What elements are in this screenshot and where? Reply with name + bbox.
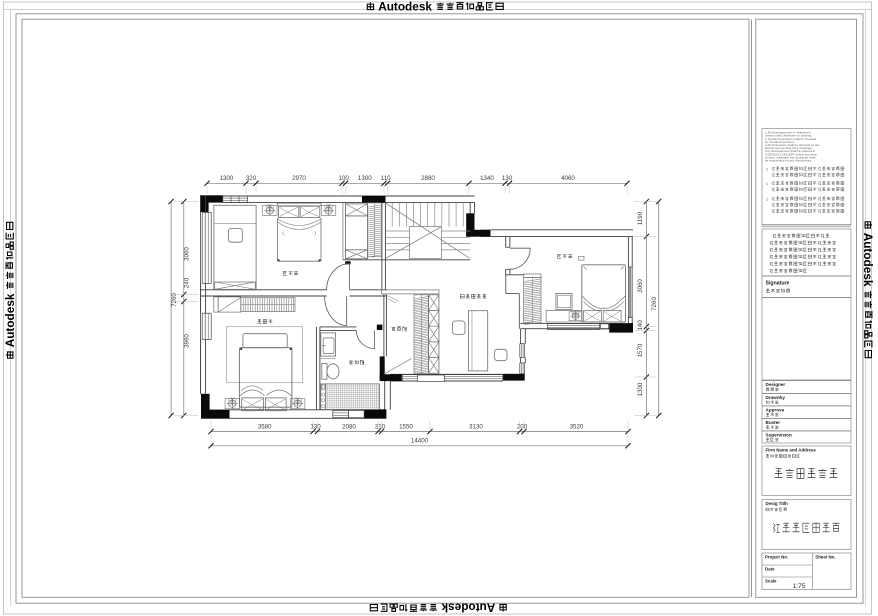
svg-text:1550: 1550 xyxy=(399,423,413,430)
svg-text:1:75: 1:75 xyxy=(793,583,806,590)
svg-text:Designer: Designer xyxy=(766,382,786,387)
svg-text:310: 310 xyxy=(375,423,386,430)
svg-text:1340: 1340 xyxy=(480,175,494,182)
svg-text:1570: 1570 xyxy=(637,343,644,357)
svg-text:Date: Date xyxy=(765,567,775,572)
svg-text:130: 130 xyxy=(502,175,513,182)
svg-text:1300: 1300 xyxy=(358,175,372,182)
svg-text:3520: 3520 xyxy=(570,423,584,430)
svg-text:Drawnby: Drawnby xyxy=(766,395,786,400)
svg-text:Approve: Approve xyxy=(766,407,785,412)
svg-text:2080: 2080 xyxy=(342,423,356,430)
svg-text:240: 240 xyxy=(184,277,191,288)
svg-text:1300: 1300 xyxy=(220,175,234,182)
svg-text:3960: 3960 xyxy=(184,334,191,348)
svg-text:200: 200 xyxy=(517,423,528,430)
svg-text:1300: 1300 xyxy=(637,382,644,396)
svg-text:1: 1 xyxy=(766,168,768,172)
svg-text:7260: 7260 xyxy=(651,297,658,311)
svg-text:2970: 2970 xyxy=(292,175,306,182)
svg-text:320: 320 xyxy=(246,175,257,182)
svg-text:Sheet No.: Sheet No. xyxy=(815,555,835,560)
svg-text:14400: 14400 xyxy=(411,438,429,445)
svg-text:Project No.: Project No. xyxy=(765,555,788,560)
svg-text:Autodesk: Autodesk xyxy=(441,600,495,614)
svg-text:4060: 4060 xyxy=(561,175,575,182)
svg-text:130: 130 xyxy=(310,423,321,430)
svg-text:3580: 3580 xyxy=(258,423,272,430)
svg-text:3130: 3130 xyxy=(469,423,483,430)
svg-text:1190: 1190 xyxy=(637,211,644,225)
svg-text:Scale: Scale xyxy=(765,579,777,584)
svg-text:Buster: Buster xyxy=(766,420,781,425)
svg-text:Supervision: Supervision xyxy=(766,432,792,437)
svg-text:be responsible for any discrep: be responsible for any discrepancy. xyxy=(765,159,812,163)
svg-text:Autodesk: Autodesk xyxy=(3,293,17,347)
svg-text:2880: 2880 xyxy=(421,175,435,182)
svg-text:140: 140 xyxy=(637,320,644,331)
svg-text:Autodesk: Autodesk xyxy=(861,233,875,287)
svg-text:1: 1 xyxy=(766,198,768,202)
svg-text:110: 110 xyxy=(381,175,391,182)
svg-text:Signature: Signature xyxy=(766,281,790,287)
svg-text:100: 100 xyxy=(339,175,350,182)
svg-text:3060: 3060 xyxy=(184,247,191,261)
svg-text:Autodesk: Autodesk xyxy=(378,0,432,14)
svg-text:3060: 3060 xyxy=(637,279,644,293)
svg-text:Desig Titlh: Desig Titlh xyxy=(766,501,789,506)
svg-text:Firm Name and Address: Firm Name and Address xyxy=(766,448,817,453)
svg-text:1: 1 xyxy=(766,182,768,186)
